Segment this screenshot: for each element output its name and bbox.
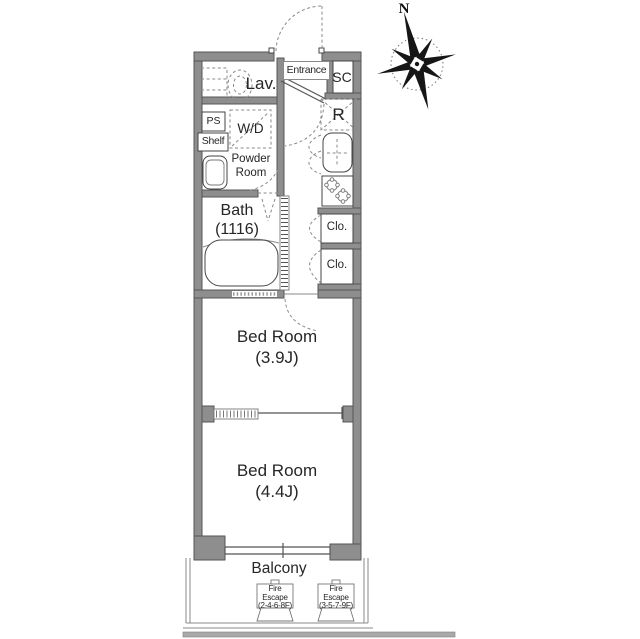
balcony-label: Balcony <box>234 560 324 578</box>
closet-lower-label: Clo. <box>321 258 353 273</box>
floor-plan-page: N Lav. Entrance SC R PS Shelf W/D Powder… <box>0 0 640 639</box>
compass-north-label: N <box>393 0 415 18</box>
powder-room-label: Powder Room <box>227 153 275 180</box>
entrance-door-swing-arc <box>269 6 324 53</box>
shoe-closet-label: SC <box>331 68 353 86</box>
vent-slot <box>232 291 277 297</box>
fire-escape-label: Fire Escape (2-4-6-8F) <box>252 585 298 611</box>
lavatory-label: Lav. <box>231 73 291 94</box>
compass-rose-icon <box>364 2 467 120</box>
bedroom-lower-label: Bed Room (4.4J) <box>222 460 332 502</box>
kitchen-sink-icon <box>309 133 352 174</box>
ground-lines <box>183 628 455 637</box>
balcony-window <box>225 543 330 558</box>
bathtub-icon <box>203 239 279 286</box>
bath-sliding-partition <box>280 196 289 290</box>
fire-escape-label: Fire Escape (3-5-7-9F) <box>313 585 359 611</box>
closet-upper-label: Clo. <box>321 220 353 235</box>
pipe-shaft-label: PS <box>202 114 225 129</box>
bath-label: Bath (1116) <box>205 201 269 239</box>
floor-plan-drawing <box>0 0 640 639</box>
entrance-label: Entrance <box>283 61 330 80</box>
washer-dryer-label: W/D <box>230 120 271 138</box>
washbasin-icon <box>203 156 227 189</box>
stove-icon <box>322 176 353 206</box>
refrigerator-label: R <box>321 102 356 128</box>
shelf-label: Shelf <box>198 134 228 149</box>
bedroom-divider <box>214 407 342 419</box>
bedroom-upper-label: Bed Room (3.9J) <box>222 326 332 368</box>
